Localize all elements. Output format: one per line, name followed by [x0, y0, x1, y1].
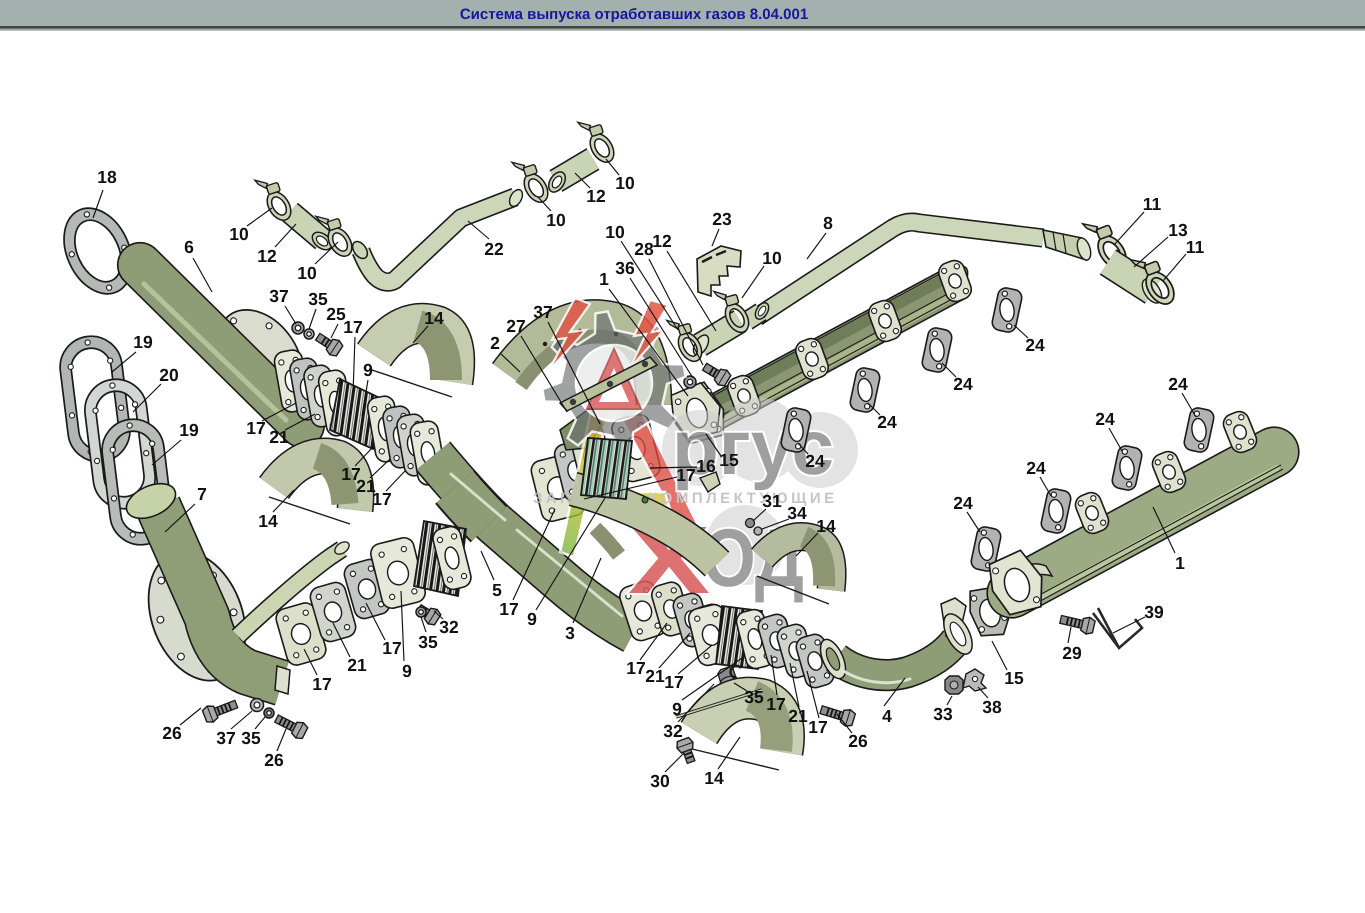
- svg-text:17: 17: [372, 489, 391, 509]
- svg-text:14: 14: [704, 768, 724, 788]
- svg-text:Система выпуска отработавших г: Система выпуска отработавших газов 8.04.…: [460, 6, 808, 23]
- svg-text:29: 29: [1062, 643, 1082, 663]
- svg-text:24: 24: [1168, 374, 1188, 394]
- svg-text:17: 17: [246, 418, 265, 438]
- svg-text:10: 10: [546, 210, 566, 230]
- svg-text:12: 12: [586, 186, 606, 206]
- svg-text:17: 17: [664, 672, 683, 692]
- svg-text:24: 24: [805, 451, 825, 471]
- svg-text:17: 17: [382, 638, 401, 658]
- svg-text:9: 9: [672, 699, 682, 719]
- svg-text:31: 31: [762, 491, 782, 511]
- svg-text:14: 14: [816, 516, 836, 536]
- svg-text:28: 28: [634, 239, 654, 259]
- svg-text:7: 7: [197, 484, 207, 504]
- svg-text:20: 20: [159, 365, 179, 385]
- svg-text:32: 32: [663, 721, 683, 741]
- svg-text:9: 9: [363, 360, 373, 380]
- svg-text:21: 21: [788, 706, 808, 726]
- svg-text:21: 21: [347, 655, 367, 675]
- svg-text:4: 4: [882, 706, 892, 726]
- svg-text:34: 34: [787, 503, 807, 523]
- svg-text:17: 17: [499, 599, 518, 619]
- svg-text:1: 1: [1175, 553, 1185, 573]
- svg-text:24: 24: [1095, 409, 1115, 429]
- svg-text:КОМПЛЕКТУЮЩИЕ: КОМПЛЕКТУЮЩИЕ: [648, 490, 838, 507]
- svg-text:35: 35: [241, 728, 261, 748]
- svg-text:9: 9: [527, 609, 537, 629]
- svg-text:24: 24: [953, 493, 973, 513]
- svg-text:16: 16: [696, 456, 716, 476]
- svg-text:15: 15: [719, 450, 739, 470]
- svg-text:10: 10: [297, 263, 317, 283]
- svg-text:17: 17: [626, 658, 645, 678]
- svg-text:26: 26: [264, 750, 284, 770]
- svg-text:1: 1: [599, 269, 609, 289]
- svg-text:24: 24: [877, 412, 897, 432]
- svg-text:18: 18: [97, 167, 117, 187]
- svg-text:24: 24: [953, 374, 973, 394]
- svg-text:12: 12: [652, 231, 672, 251]
- svg-text:17: 17: [343, 317, 362, 337]
- svg-text:15: 15: [1004, 668, 1024, 688]
- svg-text:35: 35: [308, 289, 328, 309]
- svg-text:38: 38: [982, 697, 1002, 717]
- svg-text:26: 26: [848, 731, 868, 751]
- svg-text:10: 10: [605, 222, 625, 242]
- svg-text:19: 19: [179, 420, 199, 440]
- svg-text:10: 10: [762, 248, 782, 268]
- svg-text:26: 26: [162, 723, 182, 743]
- svg-text:2: 2: [490, 333, 500, 353]
- svg-text:17: 17: [808, 717, 827, 737]
- svg-text:17: 17: [766, 694, 785, 714]
- svg-text:24: 24: [1025, 335, 1045, 355]
- svg-text:35: 35: [744, 687, 764, 707]
- svg-text:37: 37: [216, 728, 235, 748]
- svg-text:39: 39: [1144, 602, 1164, 622]
- svg-text:37: 37: [269, 286, 288, 306]
- svg-text:17: 17: [312, 674, 331, 694]
- svg-text:37: 37: [533, 302, 552, 322]
- svg-text:24: 24: [1026, 458, 1046, 478]
- svg-text:21: 21: [269, 427, 289, 447]
- svg-text:3: 3: [565, 623, 575, 643]
- svg-text:17: 17: [676, 465, 695, 485]
- svg-text:6: 6: [184, 237, 194, 257]
- svg-text:19: 19: [133, 332, 153, 352]
- svg-text:11: 11: [1186, 237, 1205, 257]
- svg-text:21: 21: [645, 666, 665, 686]
- svg-text:9: 9: [402, 661, 412, 681]
- svg-text:27: 27: [506, 316, 525, 336]
- svg-text:12: 12: [257, 246, 277, 266]
- svg-text:14: 14: [258, 511, 278, 531]
- svg-text:36: 36: [615, 258, 635, 278]
- svg-text:22: 22: [484, 239, 504, 259]
- svg-text:10: 10: [615, 173, 635, 193]
- svg-text:11: 11: [1143, 194, 1162, 214]
- svg-text:30: 30: [650, 771, 670, 791]
- svg-text:23: 23: [712, 209, 732, 229]
- svg-text:14: 14: [424, 308, 444, 328]
- svg-text:33: 33: [933, 704, 953, 724]
- svg-text:5: 5: [492, 580, 502, 600]
- svg-text:8: 8: [823, 213, 833, 233]
- svg-text:32: 32: [439, 617, 459, 637]
- svg-text:35: 35: [418, 632, 438, 652]
- svg-text:10: 10: [229, 224, 249, 244]
